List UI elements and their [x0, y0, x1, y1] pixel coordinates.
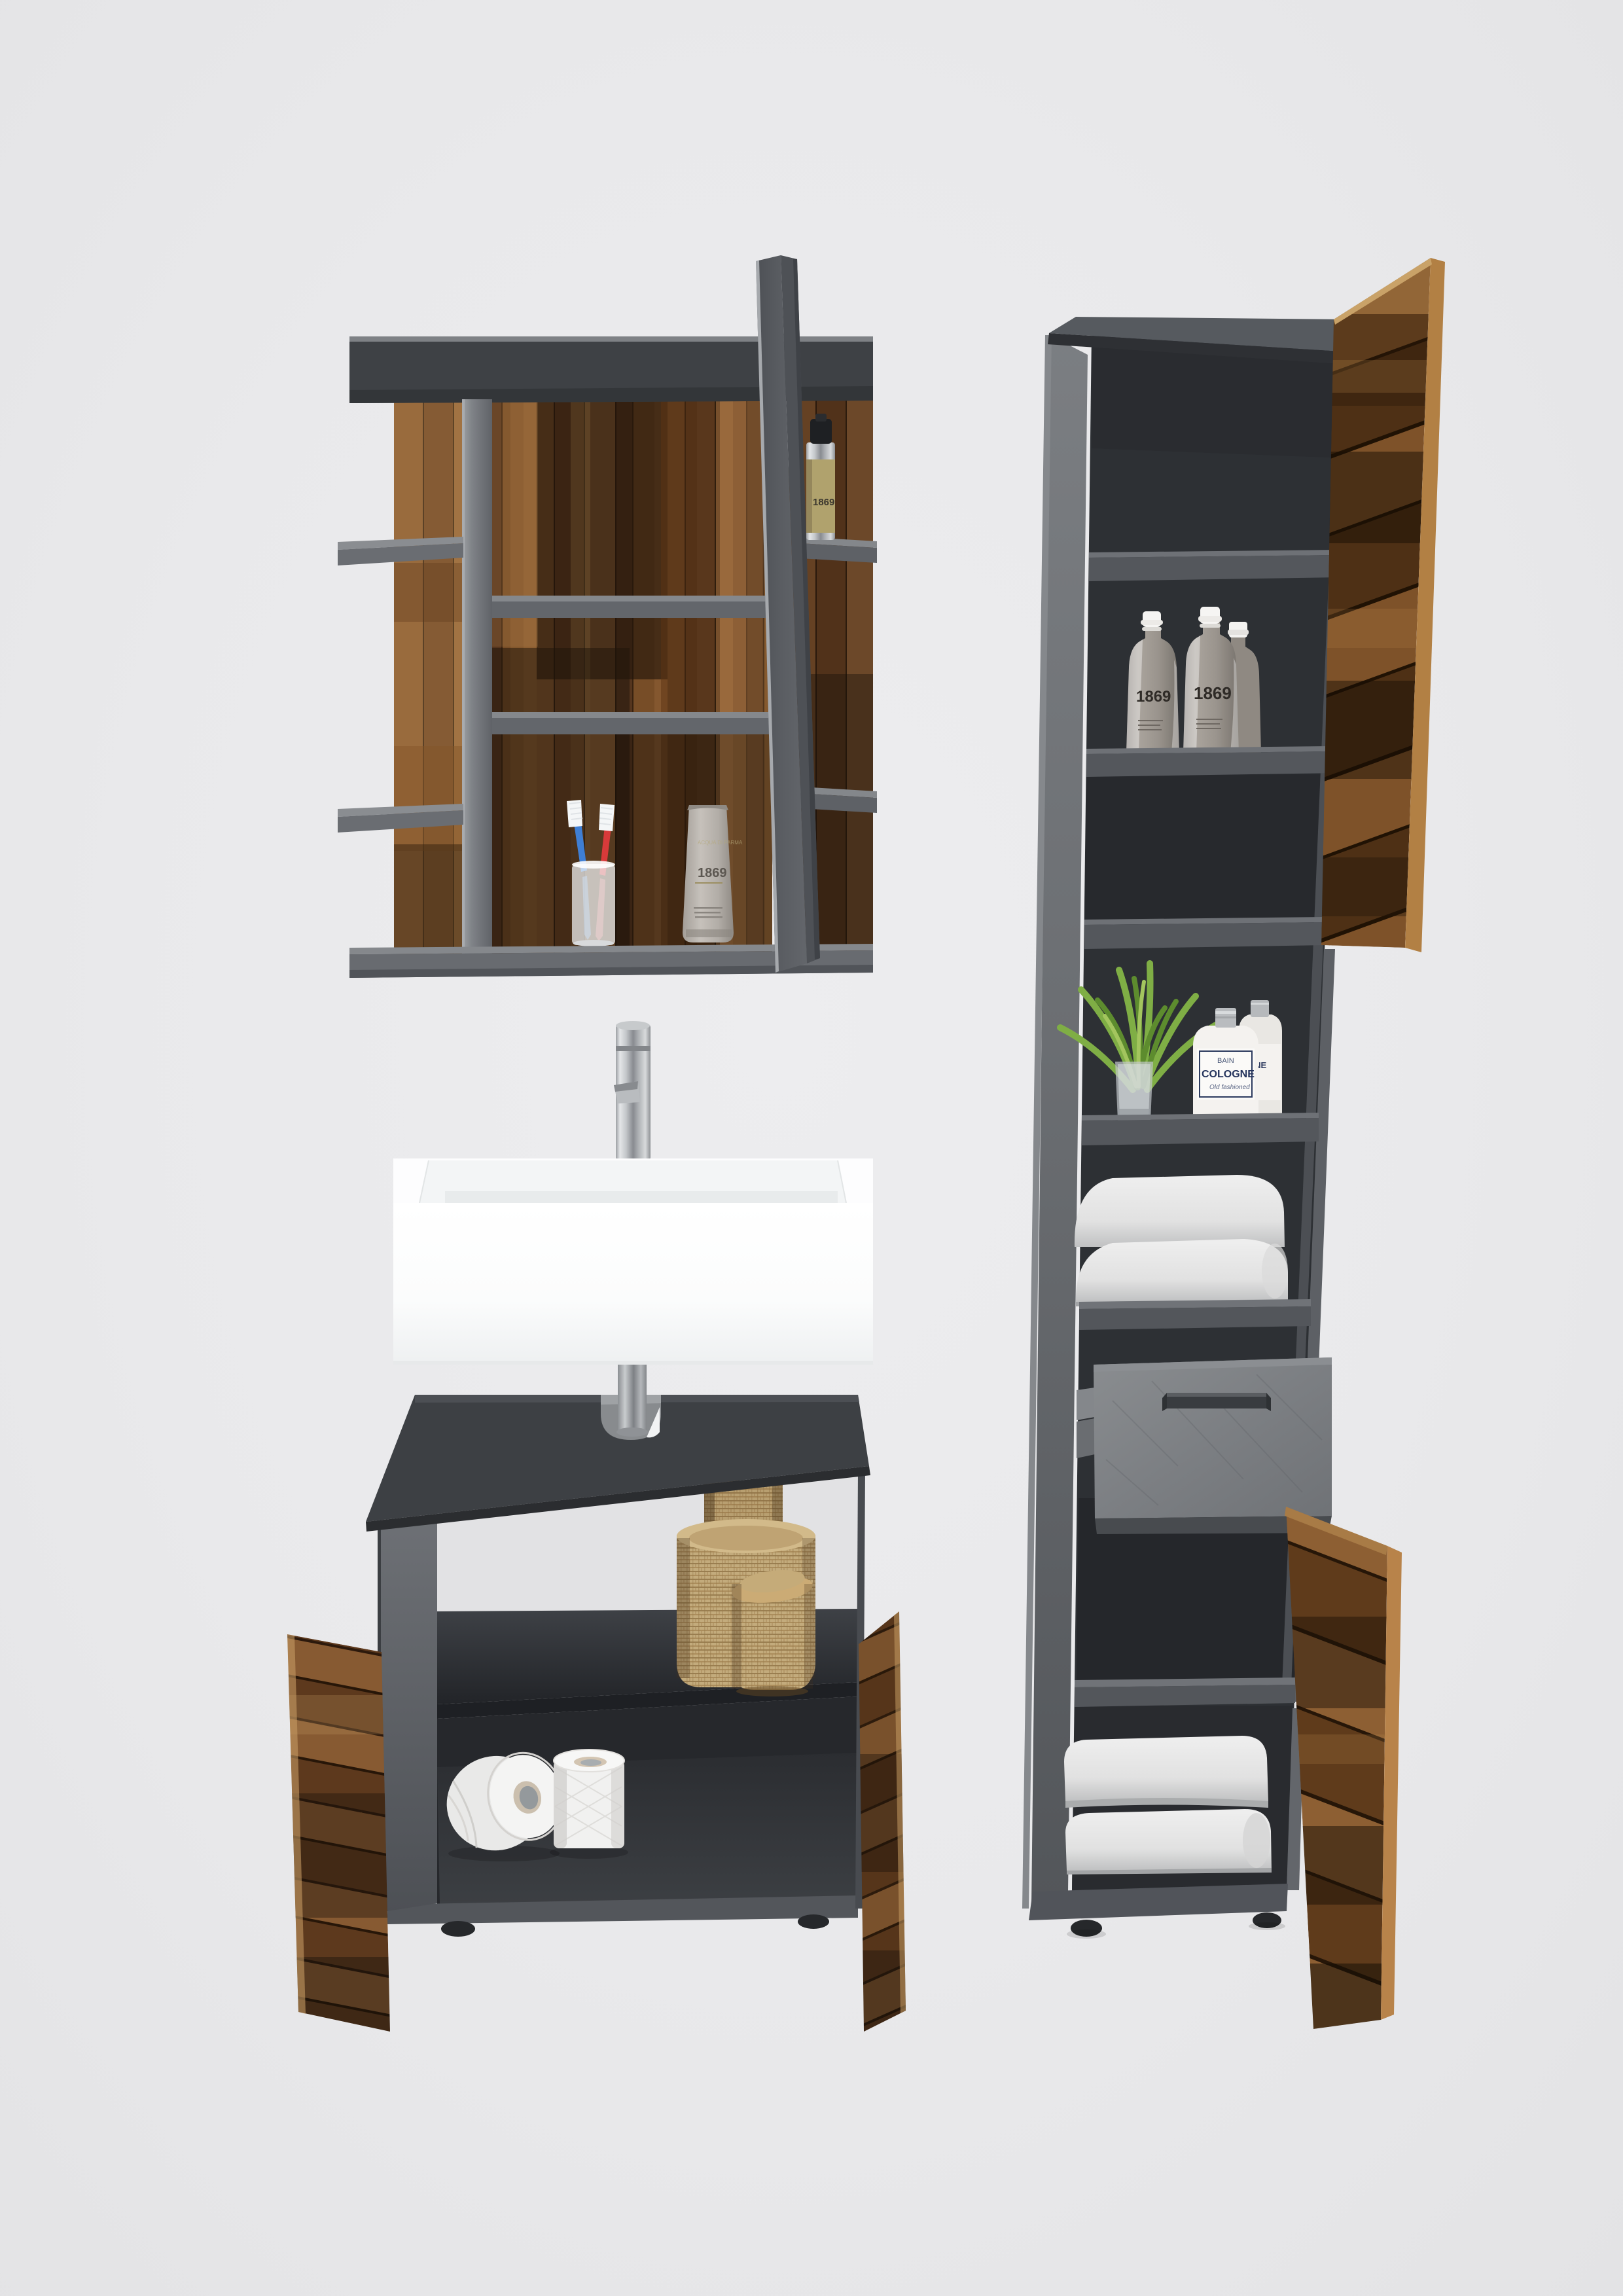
- svg-text:ACQUA DI PARMA: ACQUA DI PARMA: [698, 840, 743, 846]
- svg-text:1869: 1869: [813, 497, 834, 508]
- svg-text:COLOGNE: COLOGNE: [1202, 1069, 1255, 1080]
- svg-text:1869: 1869: [1194, 683, 1232, 703]
- svg-text:Old fashioned: Old fashioned: [1209, 1084, 1250, 1091]
- svg-text:1869: 1869: [698, 866, 727, 880]
- svg-text:1869: 1869: [1136, 688, 1171, 706]
- svg-text:BAIN: BAIN: [1217, 1057, 1234, 1065]
